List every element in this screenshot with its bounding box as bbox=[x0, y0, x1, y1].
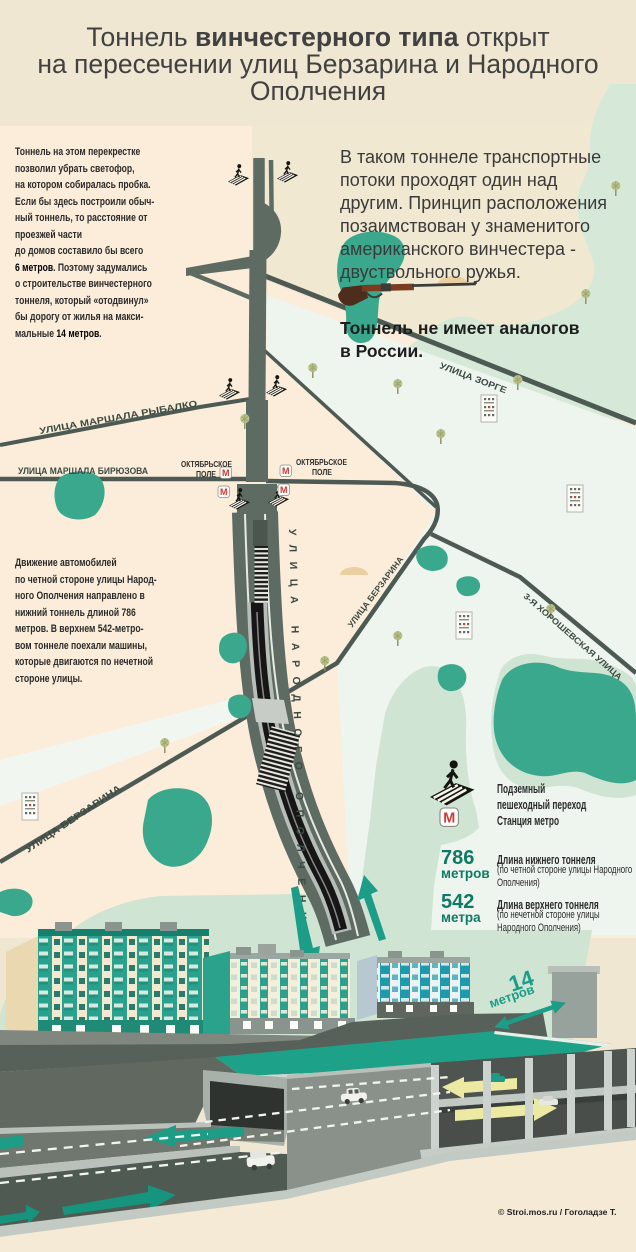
svg-text:ОКТЯБРЬСКОЕ: ОКТЯБРЬСКОЕ bbox=[296, 457, 347, 467]
svg-text:ПОЛЕ: ПОЛЕ bbox=[312, 467, 332, 477]
svg-text:УЛИЦА МАРШАЛА БИРЮЗОВА: УЛИЦА МАРШАЛА БИРЮЗОВА bbox=[18, 466, 148, 476]
svg-text:ОКТЯБРЬСКОЕ: ОКТЯБРЬСКОЕ bbox=[181, 459, 232, 469]
svg-text:ПОЛЕ: ПОЛЕ bbox=[196, 469, 216, 479]
